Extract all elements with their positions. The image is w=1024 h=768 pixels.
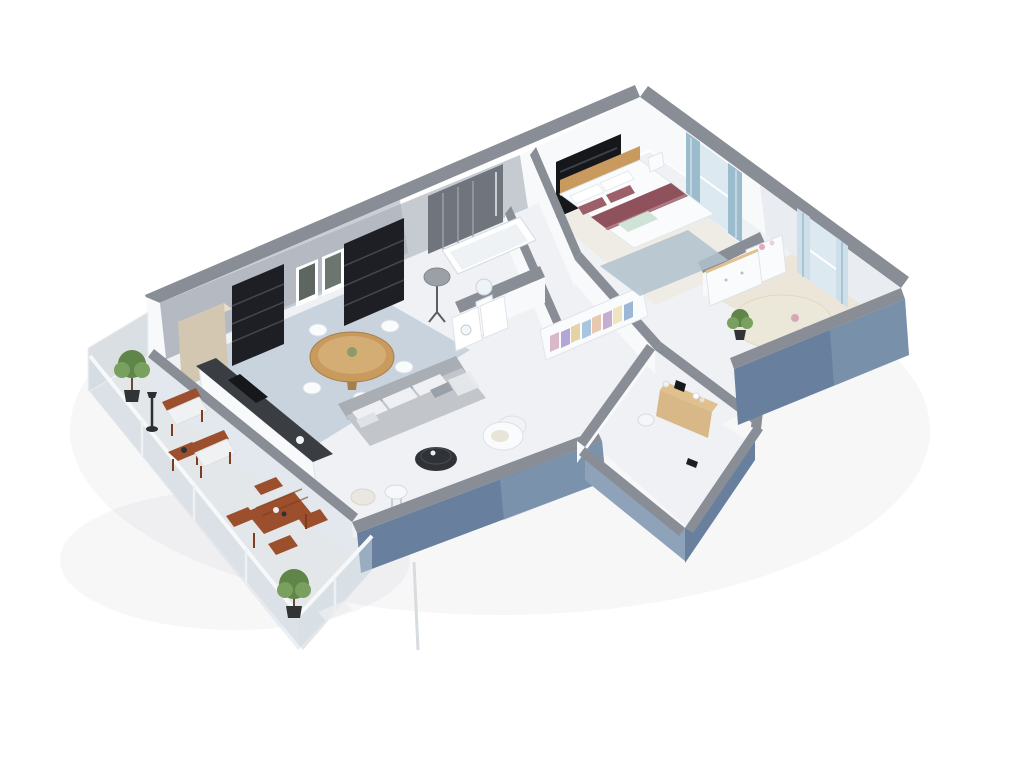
round-mirror: [476, 279, 492, 295]
table-cup: [181, 447, 187, 453]
table-cup: [273, 507, 279, 513]
washer-door: [461, 325, 471, 335]
console-jar: [663, 381, 669, 387]
dining-chair: [309, 324, 327, 336]
console-bowl: [693, 393, 699, 399]
dresser-knob: [741, 272, 744, 275]
floor-plan-render: 3D isometric dollhouse floor plan of a t…: [0, 0, 1024, 768]
tree-pot: [124, 390, 140, 402]
baby-item: [759, 244, 765, 250]
coffee-table: [415, 447, 457, 471]
laundry-basket: [638, 414, 654, 426]
coffee-cup: [431, 451, 436, 456]
console-jar: [700, 398, 705, 403]
dining-chair: [395, 361, 413, 373]
pouf: [351, 489, 375, 505]
table-centerpiece: [347, 347, 357, 357]
side-table: [385, 485, 407, 499]
tree-pot: [286, 606, 302, 618]
kettle: [296, 436, 304, 444]
table-cup: [282, 512, 287, 517]
topiary-tree-leaf: [134, 362, 150, 378]
bedroom-curtain-right: [728, 163, 742, 243]
dining-chair: [381, 320, 399, 332]
topiary-tree-leaf: [114, 362, 130, 378]
baby-item: [770, 241, 775, 246]
dining-chair: [303, 382, 321, 394]
plant-foliage: [741, 317, 753, 329]
outdoor-lamp-base: [146, 426, 158, 432]
floor-plan-page: 3D isometric dollhouse floor plan of a t…: [0, 0, 1024, 768]
plant-foliage: [727, 317, 739, 329]
dresser-knob: [725, 279, 728, 282]
topiary-tree-leaf: [277, 582, 293, 598]
floor-lamp-shade: [424, 268, 450, 286]
topiary-tree-leaf: [295, 582, 311, 598]
toy: [791, 314, 799, 322]
lounge-chair-cushion: [491, 430, 509, 442]
plant-pot: [734, 330, 746, 340]
